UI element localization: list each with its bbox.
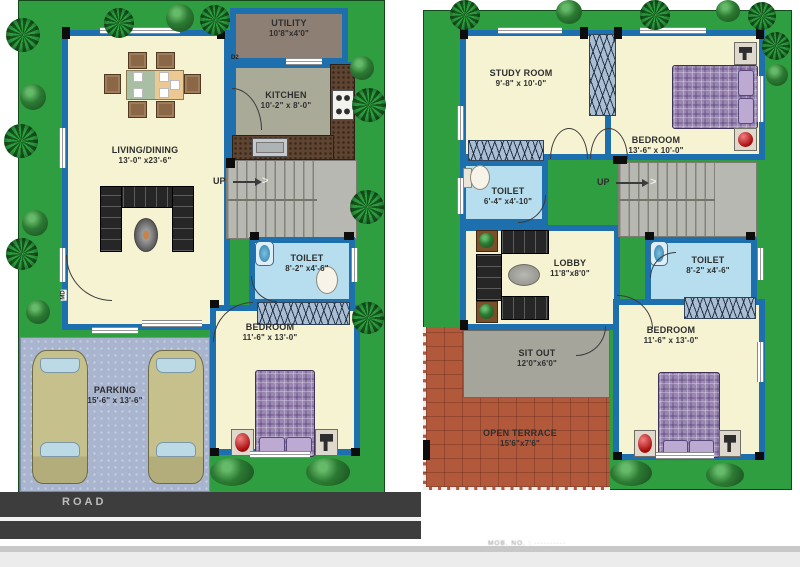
- wall-jamb: [423, 440, 430, 460]
- window: [498, 27, 562, 34]
- bush-icon: [706, 463, 744, 487]
- bush-icon: [716, 0, 740, 22]
- wall-jamb: [226, 158, 235, 168]
- label-parking: PARKING 15'-6" x 13'-6": [87, 385, 142, 406]
- wardrobe: [684, 297, 756, 319]
- dining-chair: [128, 101, 147, 118]
- bush-icon: [766, 64, 788, 86]
- stairs-ground: [226, 160, 357, 239]
- label-bedroom1: BEDROOM 13'-6" x 10'-0": [628, 135, 683, 156]
- label-lobby: LOBBY 11'8"x8'0": [550, 258, 590, 279]
- up-arrow: [616, 182, 642, 184]
- wall-jamb: [755, 452, 764, 460]
- wall-jamb: [344, 232, 354, 240]
- wall-jamb: [580, 27, 588, 39]
- palm-tree-icon: [640, 0, 670, 30]
- window: [142, 320, 202, 327]
- nightstand-red: [634, 430, 656, 457]
- dining-chair: [128, 52, 147, 69]
- toilet-sink-icon: [255, 241, 274, 266]
- plant-icon: [476, 230, 498, 252]
- wardrobe: [589, 34, 616, 116]
- wall-jamb: [210, 448, 219, 456]
- plate-icon: [159, 72, 169, 82]
- sofa: [501, 230, 549, 254]
- dining-chair: [104, 74, 121, 94]
- stair-midline: [227, 199, 317, 201]
- window: [59, 248, 66, 282]
- window: [351, 248, 358, 282]
- dining-chair: [156, 101, 175, 118]
- palm-tree-icon: [4, 124, 38, 158]
- label-toilet2: TOILET 8'-2" x4'-6": [686, 255, 730, 276]
- sofa: [476, 254, 502, 301]
- palm-tree-icon: [450, 0, 480, 30]
- wall-jamb: [746, 232, 755, 240]
- label-bedroom2: BEDROOM 11'-6" x 13'-0": [644, 325, 699, 346]
- up-arrow: [233, 181, 255, 183]
- bush-icon: [166, 4, 194, 32]
- wall-jamb: [613, 156, 627, 164]
- label-living-dining: LIVING/DINING 13'-0" x23'-6": [112, 145, 179, 166]
- kitchen-sink-icon: [252, 138, 288, 157]
- road-label: ROAD: [62, 496, 106, 508]
- plant-icon: [476, 301, 498, 323]
- bush-icon: [610, 460, 652, 486]
- pillow: [738, 70, 754, 96]
- ceiling-fan-icon: [134, 218, 158, 252]
- stairs-first: [618, 162, 757, 237]
- center-table: [508, 264, 540, 286]
- sofa: [501, 296, 549, 320]
- wall-jamb: [613, 452, 622, 460]
- nightstand-red: [734, 128, 757, 151]
- label-utility: UTILITY 10'8"x4'0": [269, 18, 309, 39]
- bush-icon: [26, 300, 50, 324]
- window: [457, 178, 464, 214]
- palm-tree-icon: [748, 2, 776, 30]
- bush-icon: [556, 0, 582, 24]
- nightstand-lamp: [315, 429, 338, 456]
- window: [92, 327, 138, 334]
- stair-midline: [619, 199, 715, 201]
- palm-tree-icon: [762, 32, 790, 60]
- window: [250, 451, 310, 458]
- palm-tree-icon: [350, 190, 384, 224]
- bush-icon: [20, 84, 46, 110]
- stair-direction-icon: >: [650, 176, 656, 188]
- window: [757, 342, 764, 382]
- wall-jamb: [645, 232, 654, 240]
- nightstand-lamp: [719, 430, 741, 457]
- floor-plan-canvas: UP > UTILITY 10'8"x4'0" KITCHEN 10'-2" x…: [0, 0, 800, 567]
- up-label-first: UP: [597, 177, 610, 187]
- window: [656, 452, 714, 459]
- label-toilet-ground: TOILET 8'-2" x4'-6": [285, 253, 329, 274]
- up-label-ground: UP: [213, 176, 226, 186]
- palm-tree-icon: [352, 302, 384, 334]
- window: [286, 58, 322, 65]
- palm-tree-icon: [352, 88, 386, 122]
- wall-jamb: [250, 232, 259, 240]
- wardrobe: [468, 140, 544, 161]
- wall-jamb: [351, 448, 360, 456]
- stair-direction-icon: >: [262, 175, 268, 187]
- sofa-set: [172, 186, 194, 252]
- dining-chair: [156, 52, 175, 69]
- plate-icon: [133, 72, 143, 82]
- palm-tree-icon: [200, 5, 230, 35]
- road: [0, 521, 421, 539]
- label-kitchen: KITCHEN 10'-2" x 8'-0": [261, 90, 312, 111]
- main-door-label: MD: [61, 289, 67, 300]
- window: [757, 76, 764, 122]
- car-icon: [148, 350, 204, 484]
- stove-icon: [332, 90, 354, 120]
- palm-tree-icon: [6, 18, 40, 52]
- wall-jamb: [210, 300, 219, 308]
- wall-jamb: [460, 320, 468, 330]
- wall-jamb: [614, 27, 622, 39]
- label-terrace: OPEN TERRACE 15'6"x7'6": [483, 428, 557, 449]
- sofa-set: [100, 186, 122, 252]
- window: [757, 248, 764, 280]
- pillow: [738, 98, 754, 124]
- palm-tree-icon: [104, 8, 134, 38]
- palm-tree-icon: [6, 238, 38, 270]
- label-toilet1: TOILET 6'-4" x4'-10": [484, 186, 532, 207]
- door-d2-label: D2: [231, 55, 239, 61]
- window: [59, 128, 66, 168]
- wall-jamb: [62, 27, 70, 39]
- label-bedroom-ground: BEDROOM 11'-6" x 13'-0": [243, 322, 298, 343]
- label-study: STUDY ROOM 9'-8" x 10'-0": [490, 68, 553, 89]
- nightstand-lamp: [734, 42, 757, 65]
- plate-icon: [159, 88, 169, 98]
- footer-band: [0, 552, 800, 567]
- window: [457, 106, 464, 140]
- dining-chair: [184, 74, 201, 94]
- label-sitout: SIT OUT 12'0"x6'0": [517, 348, 557, 369]
- bush-icon: [210, 458, 254, 486]
- plate-icon: [133, 88, 143, 98]
- plate-icon: [170, 80, 180, 90]
- bush-icon: [350, 56, 374, 80]
- bush-icon: [306, 458, 350, 486]
- bush-icon: [22, 210, 48, 236]
- car-icon: [32, 350, 88, 484]
